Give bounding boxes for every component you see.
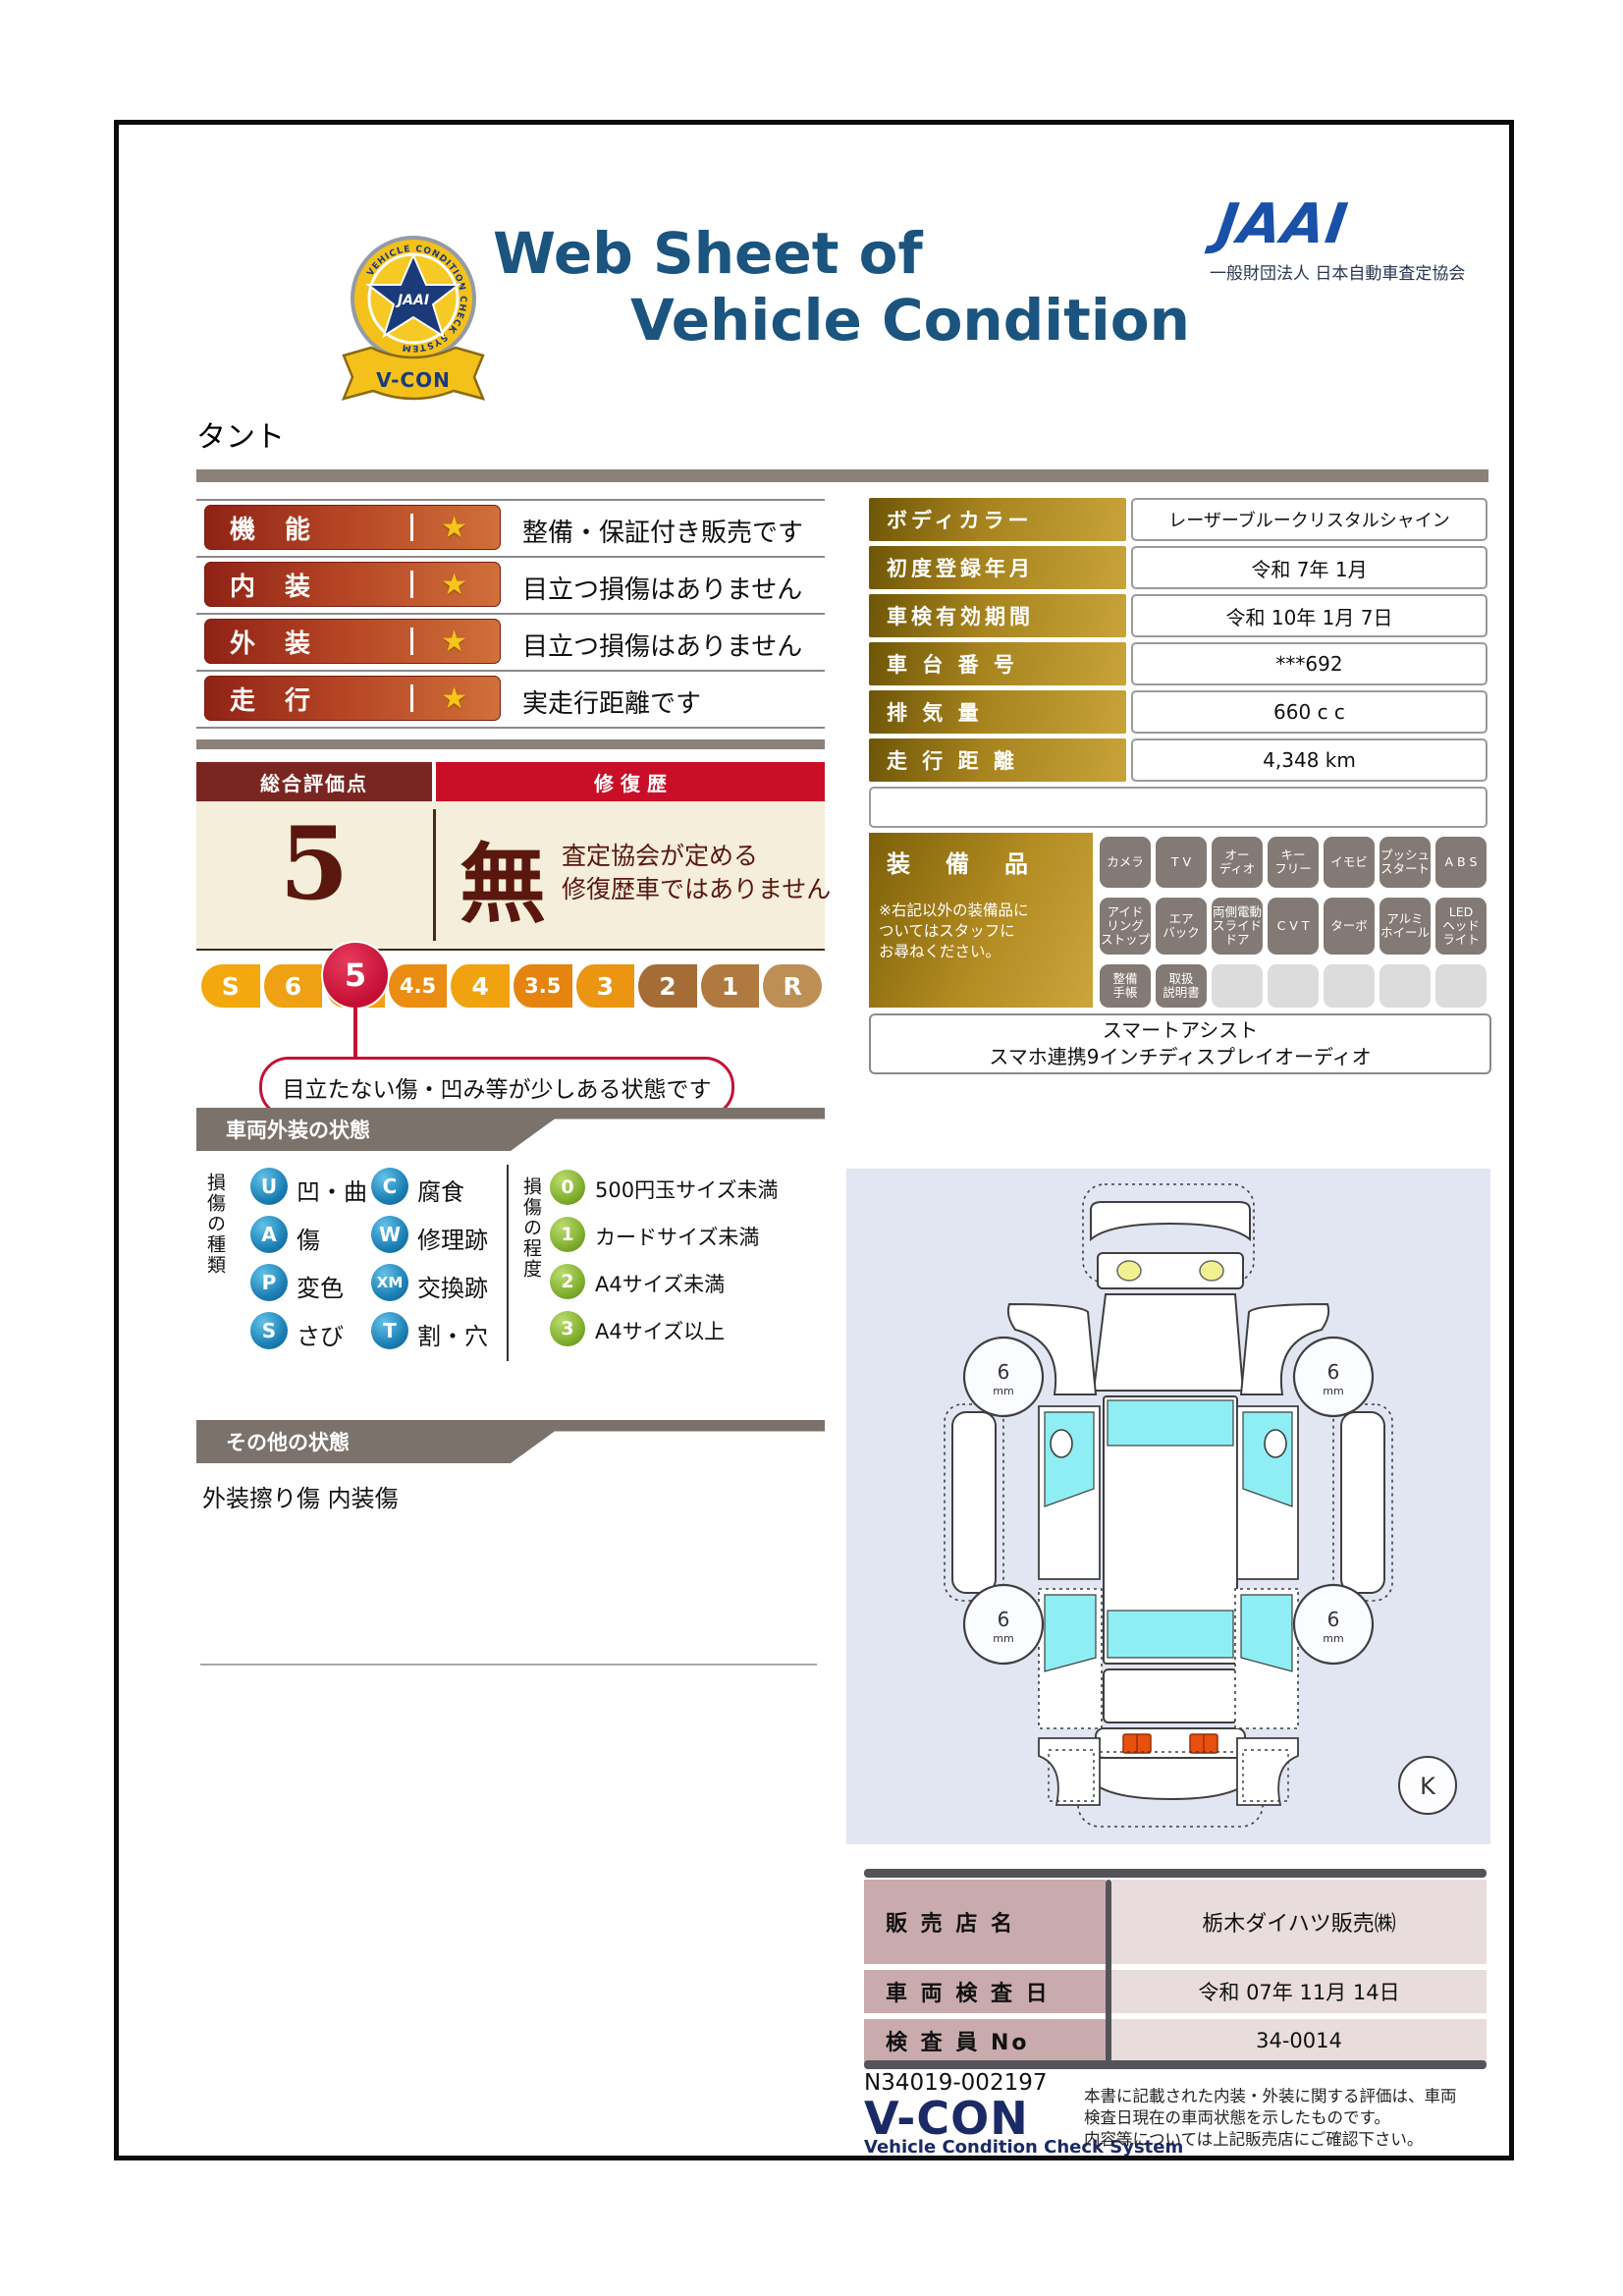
tread-depth-rear-right: 6: [1327, 1608, 1340, 1631]
tread-depth-front-right: 6: [1327, 1360, 1340, 1384]
vcon-badge-logo: VEHICLE CONDITION CHECK SYSTEM JAAI V-CO…: [330, 222, 497, 412]
equipment-badge-pushstart: プッシュ スタート: [1380, 837, 1431, 888]
equipment-badge-tv: T V: [1156, 837, 1207, 888]
rating-divider: [410, 571, 413, 598]
equipment-badge-airbag: エア バック: [1156, 898, 1207, 955]
star-icon: ★: [441, 511, 467, 545]
tread-depth-front-left: 6: [998, 1360, 1010, 1384]
inspection-date-label: 車 両 検 査 日: [864, 1970, 1106, 2013]
damage-type-icon-u: U: [250, 1168, 288, 1205]
vehicle-condition-sheet: VEHICLE CONDITION CHECK SYSTEM JAAI V-CO…: [0, 0, 1623, 2296]
scale-grade-2: 2: [634, 964, 697, 1008]
rating-label: 走 行: [230, 681, 410, 717]
extra-equipment-line2: スマホ連携9インチディスプレイオーディオ: [989, 1044, 1371, 1070]
repair-history-flag: 無: [460, 815, 546, 940]
info-label: 排 気 量: [869, 690, 1126, 734]
info-value: レーザーブルークリスタルシャイン: [1131, 498, 1488, 541]
scale-grade-6: 6: [260, 964, 323, 1008]
jaai-subtitle: 一般財団法人 日本自動車査定協会: [1210, 259, 1465, 284]
dealer-table-top-bar: [864, 1869, 1487, 1878]
dealer-table-bottom-bar: [864, 2060, 1487, 2069]
rating-label: 機 能: [230, 510, 410, 546]
scale-grade-4: 4: [447, 964, 510, 1008]
repair-note-line2: 修復歴車ではありません: [562, 874, 831, 906]
damage-type-icon-t: T: [371, 1312, 408, 1349]
damage-degree-title: 損傷の程度: [518, 1176, 545, 1343]
car-damage-diagram: 6 mm 6 mm 6 mm 6 mm K: [846, 1169, 1490, 1844]
vehicle-name: タント: [196, 412, 285, 456]
ratings-separator: [196, 727, 825, 729]
equipment-empty-slot: [1268, 964, 1319, 1008]
equipment-badge-audio: オー ディオ: [1212, 837, 1263, 888]
rating-badge-function: 機 能 ★: [204, 505, 501, 550]
tread-unit: mm: [993, 1385, 1013, 1397]
selected-grade-marker: 5: [323, 943, 388, 1008]
rating-desc: 目立つ損傷はありません: [522, 627, 802, 663]
info-label: 初度登録年月: [869, 546, 1126, 589]
dealer-label: 販 売 店 名: [864, 1880, 1106, 1964]
rating-divider: [410, 514, 413, 541]
summary-score-header: 総合評価点: [196, 762, 432, 801]
damage-degree-label: A4サイズ未満: [595, 1269, 725, 1298]
damage-type-label: 傷: [297, 1221, 320, 1255]
equipment-note: ※右記以外の装備品に ついてはスタッフに お尋ねください。: [879, 901, 1093, 962]
diagram-corner-mark: K: [1420, 1773, 1436, 1800]
damage-type-label: 凹・曲: [297, 1173, 367, 1207]
equipment-badge-alloywheel: アルミ ホイール: [1380, 898, 1431, 955]
extra-equipment-line1: スマートアシスト: [1103, 1017, 1259, 1044]
info-value: 令和 7年 1月: [1131, 546, 1488, 589]
damage-type-label: 交換跡: [417, 1269, 488, 1303]
star-icon: ★: [441, 568, 467, 602]
info-label: 車 台 番 号: [869, 642, 1126, 685]
equipment-empty-slot: [1212, 964, 1263, 1008]
info-value: ***692: [1131, 642, 1488, 685]
damage-type-icon-a: A: [250, 1216, 288, 1253]
tread-unit: mm: [1323, 1632, 1343, 1645]
damage-degree-icon-3: 3: [550, 1311, 585, 1346]
equipment-badge-slidedoor: 両側電動 スライド ドア: [1212, 898, 1263, 955]
damage-type-label: 変色: [297, 1269, 344, 1303]
equipment-badge-immobilizer: イモビ: [1324, 837, 1375, 888]
star-icon: ★: [441, 682, 467, 716]
damage-degree-label: A4サイズ以上: [595, 1316, 725, 1345]
damage-type-label: 割・穴: [417, 1317, 488, 1351]
tread-unit: mm: [993, 1632, 1013, 1645]
footer-note: 本書に記載された内装・外装に関する評価は、車両 検査日現在の車両状態を示したもの…: [1084, 2086, 1496, 2151]
other-condition-text: 外装擦り傷 内装傷: [202, 1479, 399, 1513]
scale-grade-4-5: 4.5: [385, 964, 448, 1008]
damage-type-icon-xm: XM: [371, 1264, 408, 1301]
damage-type-icon-s: S: [250, 1312, 288, 1349]
info-value: 660 c c: [1131, 690, 1488, 734]
rating-desc: 目立つ損傷はありません: [522, 570, 802, 606]
rating-badge-exterior: 外 装 ★: [204, 619, 501, 664]
equipment-badge-idlingstop: アイド リング ストップ: [1100, 898, 1151, 955]
other-section-line: [200, 1664, 817, 1666]
scale-grade-r: R: [759, 964, 822, 1008]
header-divider-bar: [196, 469, 1488, 482]
dealer-value: 栃木ダイハツ販売㈱: [1111, 1880, 1487, 1964]
equipment-empty-slot: [1324, 964, 1375, 1008]
repair-note-line1: 査定協会が定める: [562, 841, 758, 873]
rating-label: 外 装: [230, 624, 410, 660]
grade-scale-bar: S 6 4.5 4 3.5 3 2 1 R: [201, 964, 822, 1008]
rating-divider: [410, 684, 413, 712]
scale-grade-3-5: 3.5: [510, 964, 572, 1008]
tread-depth-rear-left: 6: [998, 1608, 1010, 1631]
ratings-separator: [196, 613, 825, 615]
rating-label: 内 装: [230, 567, 410, 603]
scale-grade-3: 3: [572, 964, 635, 1008]
equipment-badge-cvt: C V T: [1268, 898, 1319, 955]
summary-body-divider: [433, 809, 436, 941]
rating-badge-interior: 内 装 ★: [204, 562, 501, 607]
rating-desc: 実走行距離です: [522, 683, 701, 720]
inspector-no-label: 検 査 員 No: [864, 2019, 1106, 2062]
sheet-title-line1: Web Sheet of: [493, 220, 923, 287]
sheet-title-line2: Vehicle Condition: [630, 287, 1190, 354]
inspector-no-value: 34-0014: [1111, 2019, 1487, 2062]
damage-degree-label: 500円玉サイズ未満: [595, 1175, 778, 1204]
equipment-badge-camera: カメラ: [1100, 837, 1151, 888]
ratings-separator: [196, 670, 825, 672]
damage-type-label: 腐食: [417, 1173, 464, 1207]
info-label: ボディカラー: [869, 498, 1126, 541]
damage-type-icon-p: P: [250, 1264, 288, 1301]
scale-grade-1: 1: [697, 964, 760, 1008]
ratings-separator: [196, 499, 825, 501]
rating-desc: 整備・保証付き販売です: [522, 513, 803, 549]
equipment-panel: 装 備 品 ※右記以外の装備品に ついてはスタッフに お尋ねください。: [869, 833, 1093, 1008]
info-label: 車検有効期間: [869, 594, 1126, 637]
damage-degree-icon-1: 1: [550, 1217, 585, 1252]
info-empty-row: [869, 787, 1488, 828]
equipment-empty-slot: [1380, 964, 1431, 1008]
tread-unit: mm: [1323, 1385, 1343, 1397]
damage-type-icon-c: C: [371, 1168, 408, 1205]
info-value: 令和 10年 1月 7日: [1131, 594, 1488, 637]
info-value: 4,348 km: [1131, 738, 1488, 782]
section-divider-bar: [196, 739, 825, 749]
inspection-date-value: 令和 07年 11月 14日: [1111, 1970, 1487, 2013]
damage-type-icon-w: W: [371, 1216, 408, 1253]
extra-equipment-box: スマートアシスト スマホ連携9インチディスプレイオーディオ: [869, 1013, 1491, 1074]
callout-connector: [353, 1008, 357, 1059]
equipment-badge-turbo: ターボ: [1324, 898, 1375, 955]
damage-type-label: 修理跡: [417, 1221, 488, 1255]
damage-type-label: さび: [297, 1317, 344, 1351]
damage-degree-icon-0: 0: [550, 1170, 585, 1205]
equipment-empty-slot: [1435, 964, 1487, 1008]
ratings-separator: [196, 556, 825, 558]
equipment-badge-manual: 取扱 説明書: [1156, 964, 1207, 1008]
equipment-badge-keyfree: キー フリー: [1268, 837, 1319, 888]
jaai-logo: JAAI: [1213, 192, 1351, 256]
equipment-title: 装 備 品: [887, 845, 1093, 879]
legend-divider: [507, 1165, 509, 1361]
scale-grade-s: S: [201, 964, 260, 1008]
equipment-badge-servicebook: 整備 手帳: [1100, 964, 1151, 1008]
damage-degree-icon-2: 2: [550, 1264, 585, 1299]
star-icon: ★: [441, 625, 467, 659]
equipment-badge-ledheadlight: LED ヘッド ライト: [1435, 898, 1487, 955]
rating-divider: [410, 628, 413, 655]
info-label: 走 行 距 離: [869, 738, 1126, 782]
equipment-badge-abs: A B S: [1435, 837, 1487, 888]
badge-ribbon-text: V-CON: [376, 368, 451, 392]
badge-star-text: JAAI: [395, 293, 429, 308]
dealer-table-divider: [1106, 1880, 1111, 2062]
overall-score: 5: [196, 805, 432, 923]
rating-badge-mileage: 走 行 ★: [204, 676, 501, 721]
damage-degree-label: カードサイズ未満: [595, 1222, 759, 1251]
summary-repair-header: 修 復 歴: [436, 762, 825, 801]
damage-type-title: 損傷の種類: [202, 1173, 229, 1339]
